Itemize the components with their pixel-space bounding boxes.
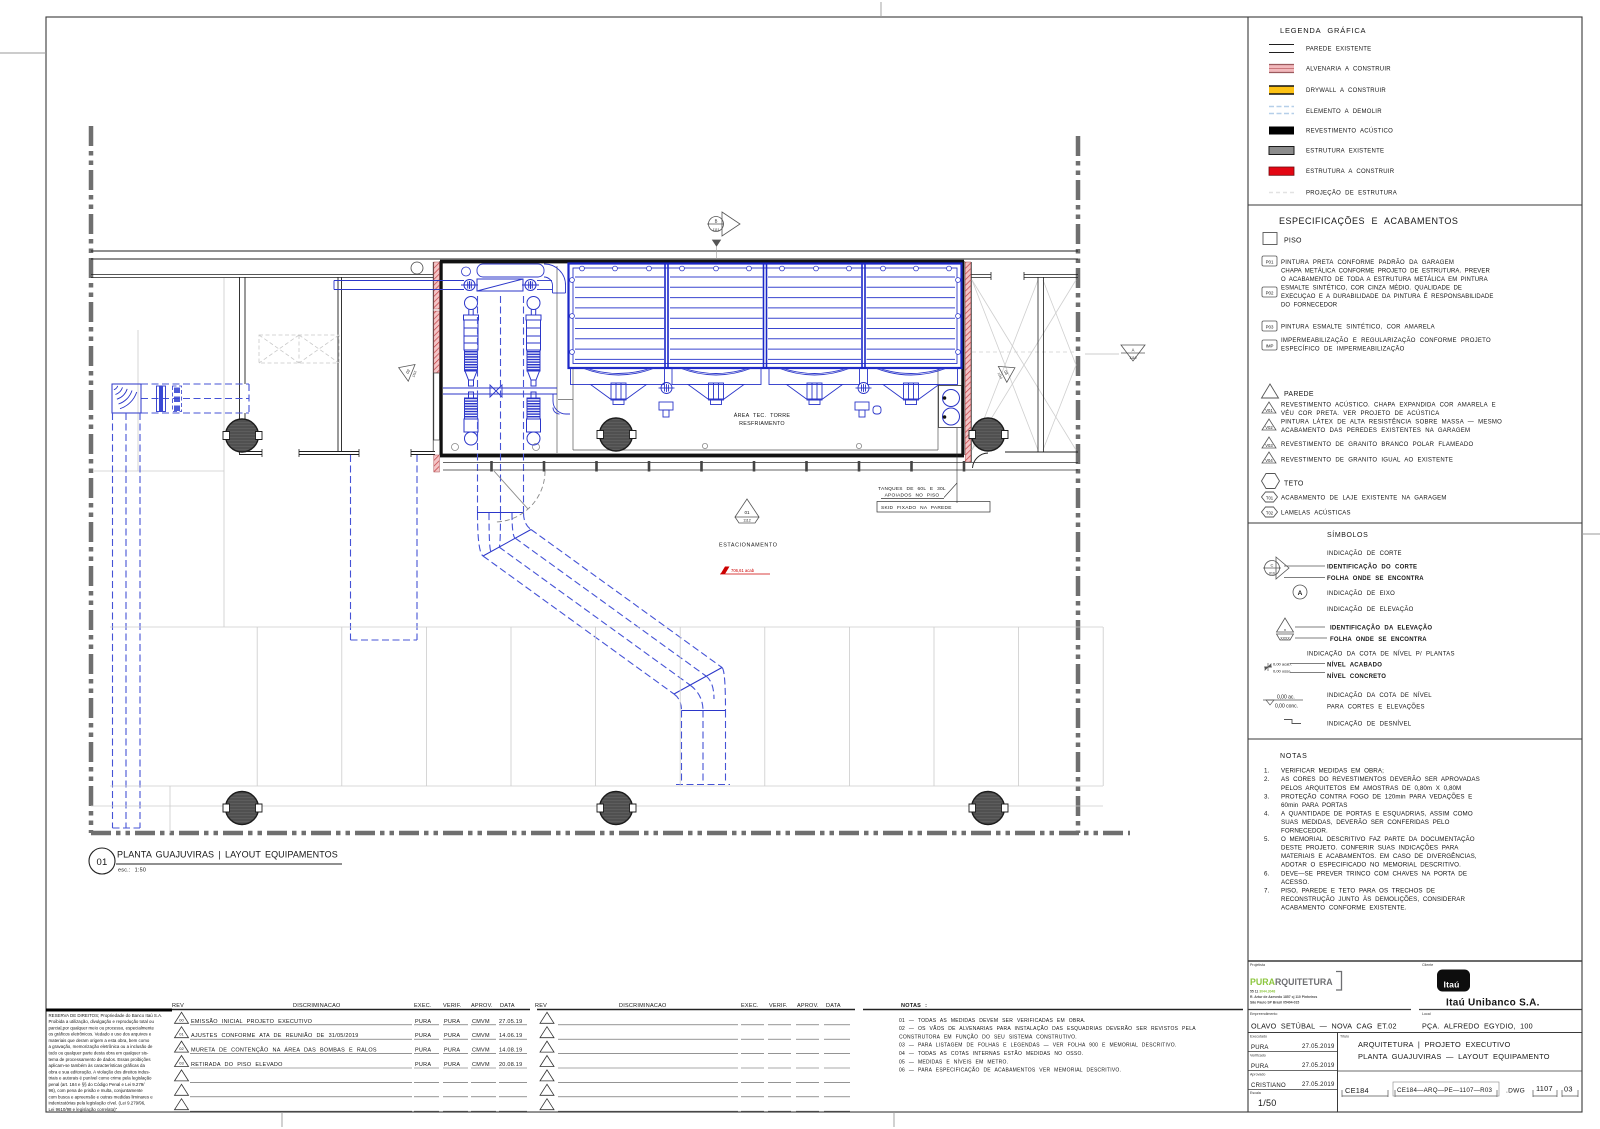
svg-text:a gravação, memorização eletrô: a gravação, memorização eletrônica ou a … [49,1044,154,1049]
svg-text:PINTURA LÁTEX DE ALTA RESI: PINTURA LÁTEX DE ALTA RESISTÊNCIA SOBRE … [1281,418,1502,426]
svg-text:DO FORNECEDOR: DO FORNECEDOR [1281,303,1338,309]
svg-text:INDICAÇÃO DE EIXO: INDICAÇÃO DE EIXO [1327,590,1395,597]
svg-text:T02: T02 [1266,510,1274,515]
svg-text:P01: P01 [1266,259,1274,264]
svg-text:1111: 1111 [713,228,720,232]
svg-text:São Paulo SP Brasil 05404-015: São Paulo SP Brasil 05404-015 [1250,1001,1299,1005]
svg-text:INDICAÇÃO DA COTA DE NÍVEL: INDICAÇÃO DA COTA DE NÍVEL [1327,692,1432,699]
svg-text:0,00 ac.: 0,00 ac. [1277,695,1295,701]
svg-text:14.08.19: 14.08.19 [499,1048,522,1054]
svg-text:DISCRIMINACAO: DISCRIMINACAO [619,1003,667,1009]
svg-text:NÍVEL CONCRETO: NÍVEL CONCRETO [1327,672,1386,680]
svg-text:RETIRADA DO PISO ELEVADO: RETIRADA DO PISO ELEVADO [191,1062,283,1068]
svg-text:INDICAÇÃO DE DESNÍVEL: INDICAÇÃO DE DESNÍVEL [1327,721,1412,728]
svg-text:CMVM: CMVM [472,1033,490,1039]
svg-text:PARA CORTES E ELEVAÇÕES: PARA CORTES E ELEVAÇÕES [1327,704,1425,711]
svg-text:DISCRIMINACAO: DISCRIMINACAO [293,1003,341,1009]
svg-text:27.05.19: 27.05.19 [499,1019,522,1025]
svg-text:REV: REV [172,1003,184,1009]
svg-text:INDICAÇÃO DE CORTE: INDICAÇÃO DE CORTE [1327,550,1402,557]
svg-text:1112: 1112 [743,519,750,523]
svg-text:PINTURA PRETA CONFORME PADR: PINTURA PRETA CONFORME PADRÃO DA GARAGEM [1281,259,1454,266]
svg-text:Projetista: Projetista [1250,963,1265,967]
svg-text:A: A [1298,590,1303,597]
svg-text:03 — PARA LISTAGEM DE FOLHA: 03 — PARA LISTAGEM DE FOLHAS E LEGENDAS … [899,1043,1177,1049]
svg-text:Aprovado: Aprovado [1250,1073,1265,1077]
svg-text:Verificado: Verificado [1250,1054,1266,1058]
svg-text:27.05.2019: 27.05.2019 [1302,1063,1335,1069]
svg-text:03: 03 [179,1061,184,1066]
svg-text:penal (art. 184 e §§ do Código: penal (art. 184 e §§ do Código Penal e L… [49,1082,146,1087]
svg-text:DRYWALL A CONSTRUIR: DRYWALL A CONSTRUIR [1306,88,1386,94]
svg-text:V01: V01 [1265,408,1273,413]
svg-text:1110: 1110 [1129,356,1136,360]
svg-text:ESPECÍFICO DE IMPERMEABILIZA: ESPECÍFICO DE IMPERMEABILIZAÇÃO [1281,346,1405,353]
svg-text:ELEMENTO A DEMOLIR: ELEMENTO A DEMOLIR [1306,109,1382,115]
svg-text:PINTURA ESMALTE SINTÉTICO,: PINTURA ESMALTE SINTÉTICO, COR AMARELA [1281,324,1435,331]
svg-text:CMVM: CMVM [472,1062,490,1068]
svg-text:EMISSÃO INICIAL PROJETO EXE: EMISSÃO INICIAL PROJETO EXECUTIVO [191,1018,313,1025]
svg-text:010: 010 [1269,572,1275,576]
svg-text:B: B [715,219,718,224]
svg-text:CE184: CE184 [1345,1086,1369,1095]
svg-text:01 — TODAS AS MEDIDAS DEVEM: 01 — TODAS AS MEDIDAS DEVEM SER VERIFICA… [899,1018,1086,1024]
svg-text:05 — MEDIDAS E NÍVEIS EM M: 05 — MEDIDAS E NÍVEIS EM METRO. [899,1058,1008,1065]
svg-text:R. Artur de Azevedo 1857 cj 11: R. Artur de Azevedo 1857 cj 110 Pinheiro… [1250,995,1317,999]
svg-text:EXECUÇAO E A DURABILIDADE: EXECUÇAO E A DURABILIDADE DA PINTURA É R… [1281,293,1493,300]
svg-text:PROTEÇÃO CONTRA FOGO DE 12: PROTEÇÃO CONTRA FOGO DE 120min PARA VEDA… [1281,793,1472,800]
svg-text:REVESTIMENTO ACÚSTICO: REVESTIMENTO ACÚSTICO [1306,128,1393,135]
svg-text:27.05.2019: 27.05.2019 [1302,1044,1335,1050]
svg-text:VERIFICAR MEDIDAS EM OBRA;: VERIFICAR MEDIDAS EM OBRA; [1281,768,1384,775]
svg-text:03: 03 [1564,1085,1573,1094]
svg-text:0,00 osso: 0,00 osso [1273,669,1291,674]
svg-text:A QUANTIDADE DE PORTAS E: A QUANTIDADE DE PORTAS E ESQUADRIAS, ASS… [1281,810,1473,817]
svg-text:96), com pena de prisão e mu: 96), com pena de prisão e multa, conjunt… [49,1088,144,1093]
svg-text:PROJEÇÃO DE ESTRUTURA: PROJEÇÃO DE ESTRUTURA [1306,190,1397,197]
svg-text:PURA: PURA [444,1033,460,1039]
svg-text:ACABAMENTO DAS PEREDES EXIS: ACABAMENTO DAS PEREDES EXISTENTES NA GAR… [1281,428,1470,434]
svg-text:VÉU COR PRETA. VER PROJETO: VÉU COR PRETA. VER PROJETO DE ACÚSTICA [1281,410,1440,417]
svg-text:REVESTIMENTO DE GRANITO BRA: REVESTIMENTO DE GRANITO BRANCO POLAR FLA… [1281,442,1473,448]
svg-text:Itaú: Itaú [1444,980,1460,990]
svg-text:PURA: PURA [415,1033,431,1039]
svg-text:TETO: TETO [1284,481,1304,488]
svg-text:ARQUITETURA | PROJETO EXECU: ARQUITETURA | PROJETO EXECUTIVO [1358,1040,1510,1049]
svg-text:.DWG: .DWG [1506,1088,1525,1095]
svg-text:Título: Título [1340,1035,1349,1039]
svg-text:ESTRUTURA A CONSTRUIR: ESTRUTURA A CONSTRUIR [1306,169,1395,175]
svg-text:14.06.19: 14.06.19 [499,1033,522,1039]
svg-text:PURA: PURA [415,1048,431,1054]
svg-text:55 11 3044.3048: 55 11 3044.3048 [1250,990,1275,994]
svg-text:ACABAMENTO DE LAJE EXISTENT: ACABAMENTO DE LAJE EXISTENTE NA GARAGEM [1281,496,1447,502]
svg-text:PURARQUITETURA: PURARQUITETURA [1250,977,1333,987]
svg-text:DEVE—SE PREVER TRINCO COM: DEVE—SE PREVER TRINCO COM CHAVES NA PORT… [1281,870,1467,877]
svg-text:02: 02 [405,368,412,375]
svg-text:materiais que deram origem a: materiais que deram origem a esta obra, … [49,1038,150,1043]
svg-text:V02: V02 [1265,425,1273,430]
svg-text:7.: 7. [1264,887,1270,894]
svg-text:4.: 4. [1264,810,1270,817]
svg-text:ESMALTE SINTÉTICO, COR CINZ: ESMALTE SINTÉTICO, COR CINZA MÉDIO. QUAL… [1281,285,1462,292]
svg-text:IMPERMEABILIZAÇÃO E REGULARI: IMPERMEABILIZAÇÃO E REGULARIZAÇÃO CONFOR… [1281,337,1491,344]
svg-text:ACESSO.: ACESSO. [1281,879,1309,886]
svg-text:TANQUES DE 60L E 30L: TANQUES DE 60L E 30L [878,486,946,492]
svg-text:0,00 conc.: 0,00 conc. [1275,704,1298,710]
svg-text:A: A [1132,348,1135,353]
svg-text:LEGENDA GRÁFICA: LEGENDA GRÁFICA [1280,26,1366,35]
svg-text:T01: T01 [1266,495,1274,500]
svg-text:SKID FIXADO NA PAREDE: SKID FIXADO NA PAREDE [881,505,952,511]
svg-text:INDICAÇÃO DE ELEVAÇÃO: INDICAÇÃO DE ELEVAÇÃO [1327,606,1414,613]
svg-text:5.: 5. [1264,836,1270,843]
svg-text:PURA: PURA [444,1048,460,1054]
svg-text:IDENTIFICAÇÃO DA ELEVAÇÃO: IDENTIFICAÇÃO DA ELEVAÇÃO [1330,625,1432,632]
svg-text:CMVM: CMVM [472,1048,490,1054]
svg-text:IMP: IMP [1266,343,1274,348]
svg-text:PURA: PURA [1251,1064,1269,1070]
svg-text:P03: P03 [1266,324,1274,329]
svg-text:PURA: PURA [444,1062,460,1068]
svg-text:SUAS MEDIDAS, DEVERÃO SER: SUAS MEDIDAS, DEVERÃO SER CONFERIDAS PEL… [1281,819,1450,826]
svg-text:XXXX: XXXX [1280,636,1290,640]
svg-text:ACABAMENTO CONFORME EXISTENT: ACABAMENTO CONFORME EXISTENTE. [1281,905,1407,912]
svg-text:ESTACIONAMENTO: ESTACIONAMENTO [719,543,778,549]
svg-text:Cliente: Cliente [1422,963,1433,967]
svg-text:Empreendimento: Empreendimento [1250,1012,1277,1016]
svg-text:1.: 1. [1264,768,1270,775]
svg-text:PLANTA GUAJUVIRAS | LAYOUT EQU: PLANTA GUAJUVIRAS | LAYOUT EQUIPAMENTOS [117,850,338,860]
svg-text:MURETA DE CONTENÇÃO NA ÁRE: MURETA DE CONTENÇÃO NA ÁREA DAS BOMBAS E… [191,1047,377,1054]
svg-text:EXEC.: EXEC. [414,1003,432,1009]
svg-text:PISO, PAREDE E TETO PARA: PISO, PAREDE E TETO PARA OS TRECHOS DE [1281,887,1435,894]
svg-text:REVESTIMENTO DE GRANITO IGU: REVESTIMENTO DE GRANITO IGUAL AO EXISTEN… [1281,458,1453,464]
svg-text:1107: 1107 [1536,1084,1553,1093]
svg-text:REV: REV [535,1003,547,1009]
svg-text:V03: V03 [1265,443,1273,448]
svg-text:PÇA. ALFREDO EGYDIO, 100: PÇA. ALFREDO EGYDIO, 100 [1422,1022,1533,1031]
svg-text:ÁREA TEC. TORRE: ÁREA TEC. TORRE [734,412,791,419]
svg-text:NOTAS :: NOTAS : [901,1003,927,1009]
svg-text:aplicam-se também às caracterí: aplicam-se também às características grá… [49,1063,146,1068]
svg-text:parcial,por qualquer meio ou p: parcial,por qualquer meio ou processo, e… [49,1025,155,1030]
svg-text:DESTE PROJETO. CONFERIR SUA: DESTE PROJETO. CONFERIR SUAS INDICAÇÕES … [1281,845,1459,852]
svg-text:PLANTA GUAJUVIRAS — LAYOUT: PLANTA GUAJUVIRAS — LAYOUT EQUIPAMENTO [1358,1052,1550,1061]
svg-text:com busca e apreensão e outras: com busca e apreensão e outras medidas l… [49,1094,154,1099]
svg-text:CMVM: CMVM [472,1019,490,1025]
svg-text:ALVENARIA A CONSTRUIR: ALVENARIA A CONSTRUIR [1306,67,1391,73]
svg-text:0,00 acab.: 0,00 acab. [1273,662,1292,667]
svg-text:os gráficos eletrônicos. Vedad: os gráficos eletrônicos. Vedado o uso do… [49,1032,152,1037]
svg-text:obra e sua editoração. A viola: obra e sua editoração. A violação dos di… [49,1069,151,1074]
svg-text:PURA: PURA [1251,1045,1269,1051]
svg-text:NÍVEL ACABADO: NÍVEL ACABADO [1327,661,1382,669]
svg-text:6.: 6. [1264,870,1270,877]
svg-text:ESPECIFICAÇÕES E ACABAMENTOS: ESPECIFICAÇÕES E ACABAMENTOS [1279,216,1458,226]
svg-text:SÍMBOLOS: SÍMBOLOS [1327,530,1368,539]
svg-text:FOLHA ONDE SE ENCONTRA: FOLHA ONDE SE ENCONTRA [1327,576,1424,582]
svg-text:esc.: 1:50: esc.: 1:50 [118,868,146,874]
svg-text:x: x [1284,627,1286,632]
svg-text:PURA: PURA [444,1019,460,1025]
svg-text:01: 01 [179,1032,184,1037]
svg-text:PURA: PURA [415,1019,431,1025]
svg-text:RECONSTRUÇÃO JUNTO ÀS DEMOL: RECONSTRUÇÃO JUNTO ÀS DEMOLIÇÕES, CONSID… [1281,896,1466,903]
svg-text:CHAPA METÁLICA CONFORME PRO: CHAPA METÁLICA CONFORME PROJETO DE ESTRU… [1281,268,1491,275]
svg-text:O ACABAMENTO DE TODA A ES: O ACABAMENTO DE TODA A ESTRUTURA METÁLIC… [1281,276,1488,283]
svg-text:CONSTRUTORA EM FUNÇÃO DO S: CONSTRUTORA EM FUNÇÃO DO SEU SISTEMA CON… [899,1033,1077,1040]
svg-text:EXEC.: EXEC. [741,1003,759,1009]
svg-text:60min PARA PORTAS: 60min PARA PORTAS [1281,802,1348,809]
svg-text:OLAVO SETÚBAL — NOVA CAG: OLAVO SETÚBAL — NOVA CAG ET.02 [1251,1022,1397,1031]
svg-text:Itaú Unibanco S.A.: Itaú Unibanco S.A. [1446,998,1540,1009]
svg-text:REVESTIMENTO ACÚSTICO. CHAPA: REVESTIMENTO ACÚSTICO. CHAPA EXPANDIDA C… [1281,402,1496,409]
svg-text:CRISTIANO: CRISTIANO [1251,1083,1286,1089]
svg-text:FOLHA ONDE SE ENCONTRA: FOLHA ONDE SE ENCONTRA [1330,637,1427,643]
svg-text:00: 00 [179,1017,184,1022]
svg-text:01: 01 [744,510,750,515]
svg-text:Local: Local [1422,1012,1431,1016]
svg-text:FORNECEDOR.: FORNECEDOR. [1281,828,1328,835]
svg-text:AJUSTES CONFORME ATA DE RE: AJUSTES CONFORME ATA DE REUNIÃO DE 31/05… [191,1032,359,1039]
svg-text:INDICAÇÃO DA COTA DE NÍVEL: INDICAÇÃO DA COTA DE NÍVEL P/ PLANTAS [1307,651,1455,658]
svg-text:MATERIAIS E ACABAMENTOS. EM: MATERIAIS E ACABAMENTOS. EM CASO DE DIVE… [1281,852,1477,860]
svg-text:06 — PARA ESPECIFICAÇÃO DE: 06 — PARA ESPECIFICAÇÃO DE ACABAMENTOS V… [899,1067,1121,1074]
svg-text:ADOTAR O ESPECIFICADO NO M: ADOTAR O ESPECIFICADO NO MEMORIAL DESCRI… [1281,862,1461,869]
svg-text:3.: 3. [1264,793,1270,800]
svg-text:01: 01 [96,857,107,868]
svg-text:04 — TODAS AS COTAS INTERNA: 04 — TODAS AS COTAS INTERNAS ESTÃO MEDID… [899,1050,1083,1057]
svg-text:706,61 acab: 706,61 acab [731,568,755,573]
svg-text:PELOS ARQUITETOS EM AMOSTRA: PELOS ARQUITETOS EM AMOSTRAS DE 0,80m X … [1281,785,1461,792]
svg-text:2.: 2. [1264,776,1270,783]
svg-text:AS CORES DO REVESTIMENTOS: AS CORES DO REVESTIMENTOS DEVERÃO SER AP… [1281,776,1480,783]
svg-text:RESERVA DE DIREITOS; Proprieda: RESERVA DE DIREITOS; Propriedade do Banc… [49,1013,163,1018]
svg-text:Lei 9610/98 e legislação corre: Lei 9610/98 e legislação correlata)” [49,1107,118,1112]
svg-text:VERIF.: VERIF. [769,1003,788,1009]
svg-text:O MEMORIAL DESCRITIVO FAZ: O MEMORIAL DESCRITIVO FAZ PARTE DA DOCUM… [1281,836,1475,843]
svg-text:DATA: DATA [500,1003,515,1009]
svg-text:P02: P02 [1266,290,1274,295]
svg-text:20.08.19: 20.08.19 [499,1062,522,1068]
svg-text:CE184—ARQ—PE—1107—R03: CE184—ARQ—PE—1107—R03 [1397,1087,1493,1094]
svg-text:indenizatórias pela legislaçã: indenizatórias pela legislação cível. (L… [49,1101,146,1106]
svg-text:APOIADOS NO PISO: APOIADOS NO PISO [885,493,940,499]
svg-text:PAREDE: PAREDE [1284,391,1314,398]
svg-text:Escala: Escala [1250,1091,1261,1095]
svg-text:Proibida a utilização, divulga: Proibida a utilização, divulgação e repr… [49,1019,155,1024]
svg-text:Executado: Executado [1250,1035,1267,1039]
svg-text:DATA: DATA [826,1003,841,1009]
svg-text:PAREDE EXISTENTE: PAREDE EXISTENTE [1306,47,1371,53]
svg-text:VERIF.: VERIF. [443,1003,462,1009]
svg-text:LAMELAS ACÚSTICAS: LAMELAS ACÚSTICAS [1281,510,1351,517]
svg-text:APROV.: APROV. [471,1003,493,1009]
svg-text:PURA: PURA [415,1062,431,1068]
svg-text:todo ou qualquer parte desta: todo ou qualquer parte desta obra em qua… [49,1051,149,1056]
svg-text:C: C [1271,563,1274,568]
svg-text:02 — OS VÃOS DE ALVENARIAS: 02 — OS VÃOS DE ALVENARIAS PARA INSTALAÇ… [899,1025,1196,1032]
svg-text:tema de processamento de dad: tema de processamento de dados. Essas pr… [49,1057,152,1062]
svg-text:IDENTIFICAÇÃO DO CORTE: IDENTIFICAÇÃO DO CORTE [1327,564,1417,571]
svg-text:02: 02 [179,1046,184,1051]
svg-text:ESTRUTURA EXISTENTE: ESTRUTURA EXISTENTE [1306,149,1384,155]
svg-text:triais e autorais é punível co: triais e autorais é punível como crime p… [49,1076,153,1081]
svg-text:APROV.: APROV. [797,1003,819,1009]
svg-text:PISO: PISO [1284,238,1302,245]
svg-text:1/50: 1/50 [1258,1098,1277,1108]
svg-text:27.05.2019: 27.05.2019 [1302,1082,1335,1088]
svg-text:RESFRIAMENTO: RESFRIAMENTO [739,421,785,427]
svg-text:NOTAS: NOTAS [1280,753,1308,760]
svg-text:V04: V04 [1265,458,1273,463]
